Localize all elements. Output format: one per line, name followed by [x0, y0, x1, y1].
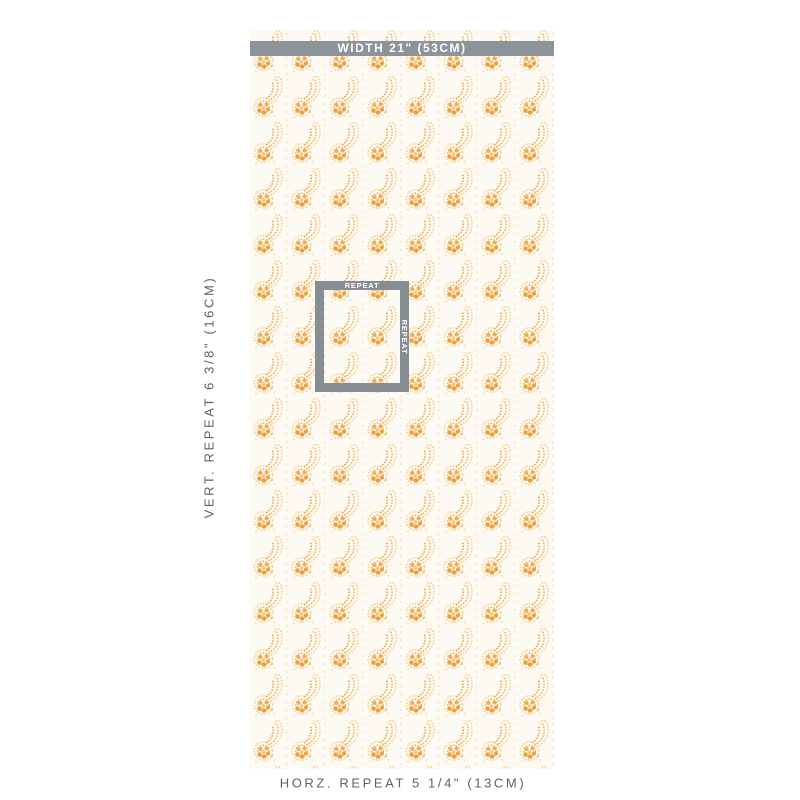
- repeat-marker-box: REPEAT REPEAT: [315, 281, 409, 392]
- wallpaper-panel: WIDTH 21" (53CM) REPEAT REPEAT: [250, 30, 554, 769]
- paisley-pattern: [250, 30, 554, 769]
- vertical-repeat-label: VERT. REPEAT 6 3/8" (16CM): [202, 276, 217, 519]
- width-label: WIDTH 21" (53CM): [337, 41, 466, 56]
- width-marker-bar: WIDTH 21" (53CM): [250, 41, 554, 56]
- repeat-side-label: REPEAT: [400, 319, 409, 354]
- product-image: WIDTH 21" (53CM) REPEAT REPEAT VERT. REP…: [0, 0, 800, 800]
- repeat-top-label: REPEAT: [345, 281, 380, 290]
- horizontal-repeat-label: HORZ. REPEAT 5 1/4" (13CM): [280, 776, 527, 791]
